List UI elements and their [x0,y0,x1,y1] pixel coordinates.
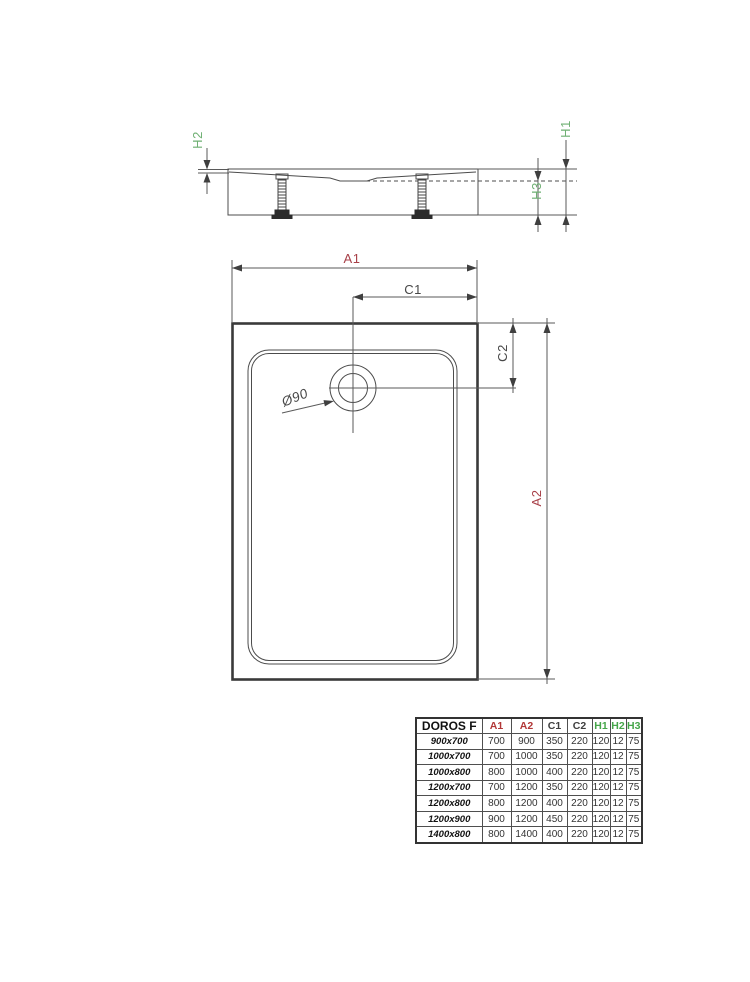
value-cell: 220 [567,734,592,750]
table-row: 1200x70070012003502201201275 [416,780,642,796]
value-cell: 12 [610,765,626,781]
value-cell: 120 [592,811,610,827]
value-cell: 450 [542,811,567,827]
value-cell: 75 [626,749,642,765]
c2-dimension-label: C2 [490,341,514,365]
size-name-cell: 1400x800 [416,827,482,843]
table-header-h3: H3 [626,718,642,734]
plan-view-drawing [225,250,565,700]
size-table-body: 900x70070090035022012012751000x700700100… [416,734,642,844]
value-cell: 120 [592,796,610,812]
size-name-cell: 1000x700 [416,749,482,765]
size-table: DOROS F A1 A2 C1 C2 H1 H2 H3 900x7007009… [415,717,643,844]
table-header-c1: C1 [542,718,567,734]
c1-dimension-label: C1 [393,281,433,297]
table-header-h1: H1 [592,718,610,734]
value-cell: 1200 [511,796,542,812]
table-row: 1200x80080012004002201201275 [416,796,642,812]
technical-drawing-page: H2 H1 H3 [0,0,750,982]
table-header-model: DOROS F [416,718,482,734]
value-cell: 220 [567,780,592,796]
value-cell: 700 [482,734,511,750]
table-header-row: DOROS F A1 A2 C1 C2 H1 H2 H3 [416,718,642,734]
h2-dimension-label: H2 [185,128,209,152]
value-cell: 800 [482,796,511,812]
value-cell: 700 [482,749,511,765]
value-cell: 75 [626,796,642,812]
table-row: 1200x90090012004502201201275 [416,811,642,827]
value-cell: 120 [592,765,610,781]
value-cell: 220 [567,749,592,765]
h3-dimension-label: H3 [524,179,548,203]
value-cell: 75 [626,827,642,843]
value-cell: 12 [610,796,626,812]
table-header-h2: H2 [610,718,626,734]
value-cell: 700 [482,780,511,796]
table-row: 900x7007009003502201201275 [416,734,642,750]
value-cell: 220 [567,796,592,812]
value-cell: 400 [542,796,567,812]
h1-dimension-label: H1 [553,117,577,141]
value-cell: 220 [567,765,592,781]
value-cell: 350 [542,749,567,765]
table-header-a2: A2 [511,718,542,734]
value-cell: 12 [610,749,626,765]
table-row: 1000x70070010003502201201275 [416,749,642,765]
value-cell: 1200 [511,780,542,796]
value-cell: 900 [482,811,511,827]
value-cell: 12 [610,827,626,843]
value-cell: 120 [592,780,610,796]
value-cell: 12 [610,811,626,827]
value-cell: 75 [626,734,642,750]
size-name-cell: 900x700 [416,734,482,750]
value-cell: 120 [592,734,610,750]
value-cell: 800 [482,765,511,781]
value-cell: 400 [542,765,567,781]
value-cell: 12 [610,780,626,796]
a1-dimension-label: A1 [332,250,372,266]
table-row: 1400x80080014004002201201275 [416,827,642,843]
value-cell: 1000 [511,749,542,765]
value-cell: 75 [626,811,642,827]
value-cell: 900 [511,734,542,750]
size-name-cell: 1200x700 [416,780,482,796]
value-cell: 12 [610,734,626,750]
adjustable-foot [272,174,292,219]
value-cell: 75 [626,780,642,796]
value-cell: 800 [482,827,511,843]
table-row: 1000x80080010004002201201275 [416,765,642,781]
size-name-cell: 1200x800 [416,796,482,812]
value-cell: 75 [626,765,642,781]
value-cell: 350 [542,780,567,796]
value-cell: 1000 [511,765,542,781]
value-cell: 220 [567,811,592,827]
a2-dimension-label: A2 [524,486,548,510]
table-header-a1: A1 [482,718,511,734]
value-cell: 350 [542,734,567,750]
size-name-cell: 1200x900 [416,811,482,827]
size-name-cell: 1000x800 [416,765,482,781]
table-header-c2: C2 [567,718,592,734]
value-cell: 1400 [511,827,542,843]
value-cell: 120 [592,749,610,765]
value-cell: 1200 [511,811,542,827]
value-cell: 120 [592,827,610,843]
value-cell: 400 [542,827,567,843]
value-cell: 220 [567,827,592,843]
